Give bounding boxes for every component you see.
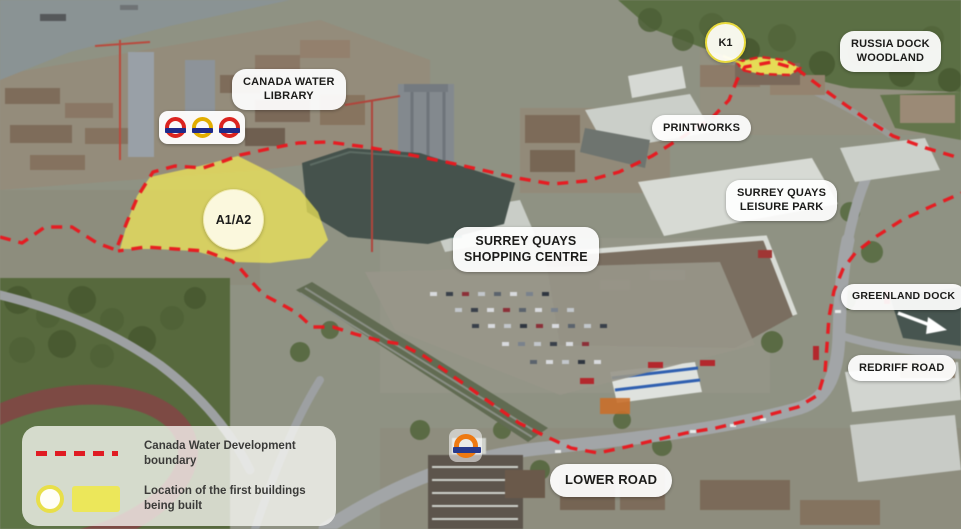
label-line: RUSSIA DOCK — [851, 37, 930, 51]
red-dashed-line-swatch — [36, 451, 118, 456]
roundel-bar — [192, 128, 213, 133]
label-line: WOODLAND — [851, 51, 930, 65]
badge-text: A1/A2 — [216, 213, 251, 227]
yellow-circle-swatch — [36, 485, 64, 513]
roundel-bar — [219, 128, 240, 133]
label-line: PRINTWORKS — [663, 121, 740, 135]
overground-roundel-icon — [192, 117, 213, 138]
label-line: REDRIFF ROAD — [859, 361, 945, 375]
label-redriff-road: REDRIFF ROAD — [848, 355, 956, 381]
legend-swatch-area — [36, 451, 132, 456]
label-line: CANADA WATER — [243, 75, 335, 89]
label-lower-road: LOWER ROAD — [550, 464, 672, 497]
roundel-bar — [453, 447, 481, 453]
label-line: GREENLAND DOCK — [852, 290, 955, 304]
label-canada-water-library: CANADA WATER LIBRARY — [232, 69, 346, 110]
yellow-area-swatch — [72, 486, 120, 512]
underground-roundel-icon — [165, 117, 186, 138]
site-badge-k1: K1 — [705, 22, 746, 63]
label-russia-dock-woodland: RUSSIA DOCK WOODLAND — [840, 31, 941, 72]
station-icons-pill — [159, 111, 245, 144]
legend-item-first-buildings: Location of the first buildings being bu… — [36, 484, 322, 514]
label-surrey-quays-shopping-centre: SURREY QUAYS SHOPPING CENTRE — [453, 227, 599, 272]
label-line: LEISURE PARK — [737, 200, 826, 214]
badge-text: K1 — [718, 37, 732, 49]
map-legend: Canada Water Development boundary Locati… — [22, 426, 336, 526]
label-line: SURREY QUAYS — [464, 233, 588, 249]
label-line: SHOPPING CENTRE — [464, 249, 588, 265]
surrey-quays-station-icon-wrap — [449, 429, 482, 462]
roundel-bar — [165, 128, 186, 133]
label-printworks: PRINTWORKS — [652, 115, 751, 141]
label-line: LOWER ROAD — [565, 472, 657, 489]
label-line: LIBRARY — [243, 89, 335, 103]
legend-item-boundary: Canada Water Development boundary — [36, 439, 322, 469]
site-badge-a1-a2: A1/A2 — [203, 189, 264, 250]
legend-swatch-area — [36, 485, 132, 513]
aerial-map: CANADA WATER LIBRARY RUSSIA DOCK WOODLAN… — [0, 0, 961, 529]
label-line: SURREY QUAYS — [737, 186, 826, 200]
legend-label: Canada Water Development boundary — [144, 439, 322, 469]
label-surrey-quays-leisure-park: SURREY QUAYS LEISURE PARK — [726, 180, 837, 221]
legend-label: Location of the first buildings being bu… — [144, 484, 322, 514]
label-greenland-dock: GREENLAND DOCK — [841, 284, 961, 310]
overground-roundel-icon — [454, 434, 478, 458]
rail-roundel-icon — [219, 117, 240, 138]
